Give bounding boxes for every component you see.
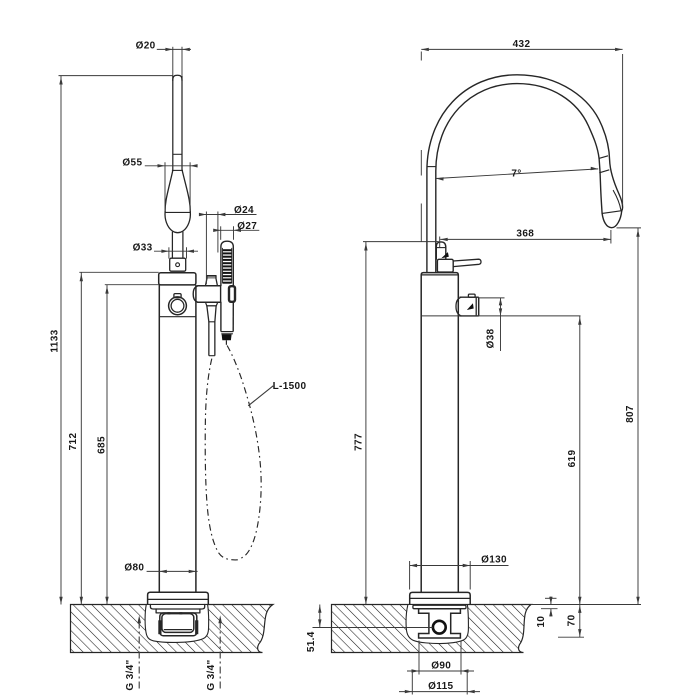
svg-text:7°: 7°	[511, 169, 521, 180]
svg-text:Ø130: Ø130	[481, 554, 507, 565]
svg-text:Ø27: Ø27	[237, 221, 257, 232]
svg-text:432: 432	[513, 39, 531, 50]
svg-text:712: 712	[68, 433, 79, 451]
svg-text:Ø20: Ø20	[136, 41, 156, 52]
svg-text:Ø90: Ø90	[431, 660, 451, 671]
svg-text:51.4: 51.4	[306, 631, 317, 652]
svg-text:70: 70	[566, 614, 577, 626]
svg-text:Ø38: Ø38	[486, 328, 497, 348]
svg-text:Ø24: Ø24	[234, 205, 254, 216]
svg-text:685: 685	[96, 436, 107, 454]
svg-text:Ø80: Ø80	[124, 562, 144, 573]
svg-text:1133: 1133	[50, 329, 61, 352]
svg-text:777: 777	[353, 433, 364, 451]
svg-text:Ø55: Ø55	[122, 157, 142, 168]
svg-text:G 3/4": G 3/4"	[206, 659, 217, 690]
svg-text:Ø115: Ø115	[428, 681, 453, 692]
svg-text:10: 10	[536, 616, 547, 628]
svg-text:Ø33: Ø33	[133, 243, 153, 254]
svg-text:807: 807	[625, 405, 636, 423]
svg-text:L-1500: L-1500	[273, 381, 307, 392]
svg-text:368: 368	[516, 228, 534, 239]
svg-text:G 3/4": G 3/4"	[125, 659, 136, 690]
svg-text:619: 619	[567, 450, 578, 468]
